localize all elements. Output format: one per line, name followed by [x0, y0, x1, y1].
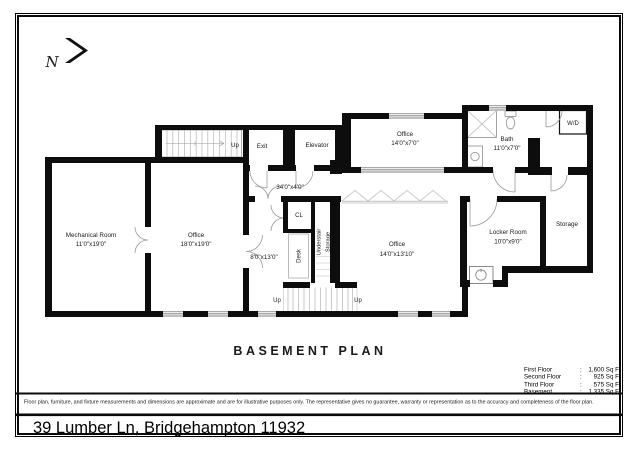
property-address: 39 Lumber Ln, Bridgehampton 11932: [33, 419, 305, 438]
zigzag-doors: [342, 191, 446, 202]
storage-door-arc: [551, 175, 567, 191]
label-office-west-dims: 18'0"x19'0": [180, 241, 211, 248]
label-understair-line1: Understair: [317, 229, 323, 256]
rule-above-address: [16, 414, 622, 417]
area-row: Third Floor : 575 Sq Ft: [524, 381, 621, 388]
north-indicator: N: [44, 38, 88, 71]
folding-wall: [342, 191, 448, 204]
zigzag-track: [342, 201, 448, 203]
bath-sink-counter: [468, 146, 483, 167]
label-wd: W/D: [567, 121, 579, 127]
label-closet: CL: [295, 213, 303, 219]
floor-plan-page: { "north": { "letter": "N" }, "plan": { …: [0, 0, 640, 453]
label-up-bottom-left: Up: [273, 298, 281, 304]
label-mechanical-dims: 11'0"x19'0": [76, 241, 107, 248]
area-colon: :: [577, 366, 585, 373]
label-small-room-dims: 8'0"x13'0": [250, 254, 278, 261]
north-letter: N: [44, 53, 59, 71]
bottom-staircase-treads: [288, 288, 353, 312]
label-bath-name: Bath: [501, 136, 514, 143]
area-row: Second Floor : 925 Sq Ft: [524, 373, 621, 380]
label-office-center-name: Office: [389, 241, 406, 248]
label-office-top-name: Office: [397, 131, 414, 138]
area-label: Third Floor: [524, 381, 577, 388]
locker-door-arc: [470, 199, 497, 226]
label-understair-line2: Storage: [326, 232, 332, 252]
label-elevator: Elevator: [305, 142, 328, 149]
north-arrow-icon: [65, 38, 88, 63]
label-up-top: Up: [231, 143, 239, 149]
area-label: First Floor: [524, 366, 577, 373]
area-row: First Floor : 1,600 Sq Ft: [524, 366, 621, 373]
area-colon: :: [577, 381, 585, 388]
area-value: 1,335 Sq Ft: [585, 388, 621, 395]
label-up-bottom-right: Up: [354, 298, 362, 304]
area-colon: :: [577, 388, 585, 395]
label-office-west-name: Office: [188, 232, 205, 239]
label-locker-dims: 10'0"x9'0": [494, 239, 522, 246]
area-colon: :: [577, 373, 585, 380]
area-summary-table: First Floor : 1,600 Sq Ft Second Floor :…: [524, 366, 621, 395]
toilet-bowl: [506, 117, 514, 129]
mechanical-door-arcs: [135, 227, 148, 253]
label-desk: Desk: [297, 248, 303, 263]
label-bath-dims: 11'0"x7'0": [493, 145, 520, 152]
closet-door-arcs: [271, 205, 284, 231]
area-value: 925 Sq Ft: [585, 373, 621, 380]
label-office-center-dims: 14'0"x13'10": [380, 251, 415, 258]
label-office-top-dims: 14'0"x7'0": [391, 140, 419, 147]
label-exit: Exit: [257, 143, 268, 150]
label-mechanical-name: Mechanical Room: [66, 232, 116, 239]
exit-door-arc: [250, 171, 267, 188]
area-value: 575 Sq Ft: [585, 381, 621, 388]
office-west-door-arcs: [246, 235, 263, 268]
area-value: 1,600 Sq Ft: [585, 366, 621, 373]
label-storage: Storage: [556, 221, 579, 228]
area-label: Second Floor: [524, 373, 577, 380]
area-row: Basement : 1,335 Sq Ft: [524, 388, 621, 395]
label-locker-name: Locker Room: [489, 229, 526, 236]
label-hallway-dims: 34'0"x4'0": [276, 184, 304, 191]
toilet-tank: [505, 111, 516, 117]
bath-door-arc: [493, 170, 515, 192]
area-label: Basement: [524, 388, 577, 395]
disclaimer-text: Floor plan, furniture, and fixture measu…: [24, 399, 622, 405]
plan-title: BASEMENT PLAN: [160, 344, 460, 358]
